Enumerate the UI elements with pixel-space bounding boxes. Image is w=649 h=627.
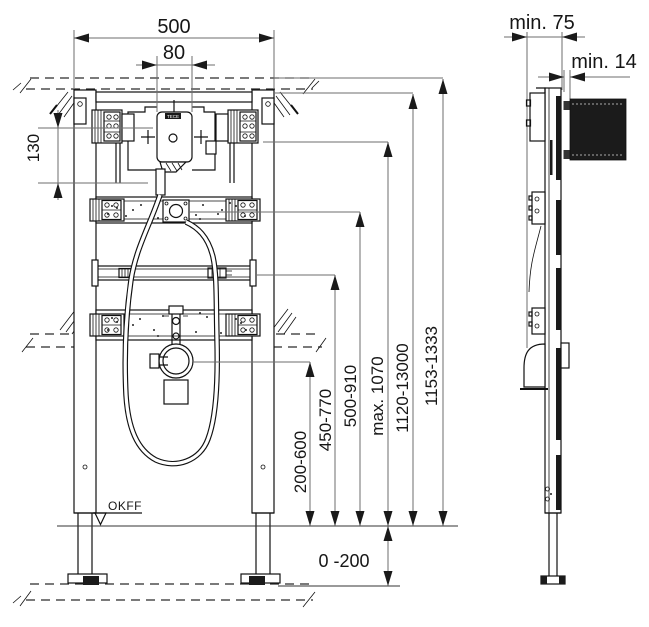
side-top-bracket xyxy=(527,88,546,141)
svg-text:min. 14: min. 14 xyxy=(571,51,637,73)
side-frame-profile xyxy=(545,88,561,513)
floor-band xyxy=(13,584,315,607)
water-connection-fitting xyxy=(163,200,189,222)
side-drain-elbow xyxy=(520,343,569,389)
side-view: min. 75 min. 14 xyxy=(504,12,637,585)
svg-text:130: 130 xyxy=(24,134,43,162)
dim-total-height: 1153-1333 xyxy=(422,326,441,406)
traverse-crossbar xyxy=(92,260,256,286)
installation-frame-drawing: TECE xyxy=(0,0,649,627)
dim-max-height: max. 1070 xyxy=(368,356,387,435)
dim-drain-height: 200-600 xyxy=(291,431,310,493)
svg-text:500: 500 xyxy=(157,16,190,38)
technical-drawing-canvas: TECE xyxy=(0,0,649,627)
dim-traverse-height: 450-770 xyxy=(316,389,335,451)
svg-text:80: 80 xyxy=(163,42,185,64)
side-mid-brackets xyxy=(529,192,545,334)
lower-mounting-rail xyxy=(90,306,260,344)
svg-text:0 -200: 0 -200 xyxy=(318,551,369,571)
upper-mounting-rail xyxy=(90,197,260,223)
flush-valve-unit xyxy=(157,112,192,162)
dim-water-height: 500-910 xyxy=(341,365,360,427)
dim-below-floor: 0 -200 xyxy=(318,526,392,586)
datum-label: OKFF xyxy=(108,499,142,513)
unit-brand-label: TECE xyxy=(167,114,179,119)
side-leg xyxy=(541,513,565,585)
svg-text:min. 75: min. 75 xyxy=(509,12,575,34)
flush-valve-assembly: TECE xyxy=(92,100,258,195)
protection-box xyxy=(570,99,626,160)
hose-side-profile xyxy=(529,226,541,292)
drain-fitting xyxy=(150,344,193,404)
wallboard-strips xyxy=(564,101,571,159)
height-dimensions: 200-600 450-770 500-910 max. 1070 1120-1… xyxy=(189,78,448,526)
wall-band-mid-right xyxy=(272,309,326,352)
dim-min-depth: min. 75 xyxy=(504,12,585,42)
wall-anchor-symbol-top-right xyxy=(272,92,298,117)
front-view: TECE xyxy=(13,16,458,607)
flush-pipe xyxy=(156,169,165,195)
dim-frame-top-height: 1120-13000 xyxy=(393,343,412,433)
